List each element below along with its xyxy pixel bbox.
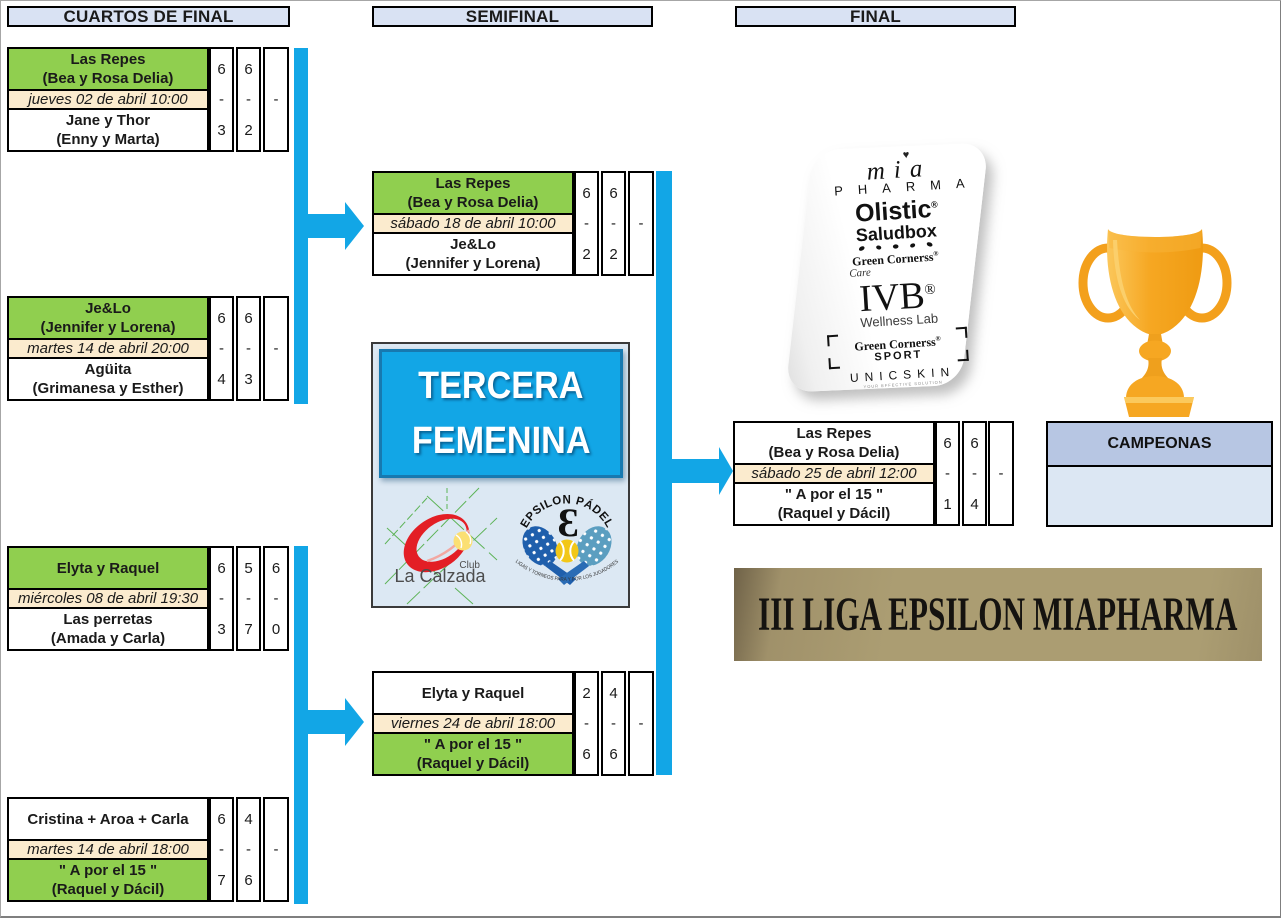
svg-text:La Calzada: La Calzada <box>394 566 486 586</box>
svg-text:Ɛ: Ɛ <box>557 500 578 545</box>
